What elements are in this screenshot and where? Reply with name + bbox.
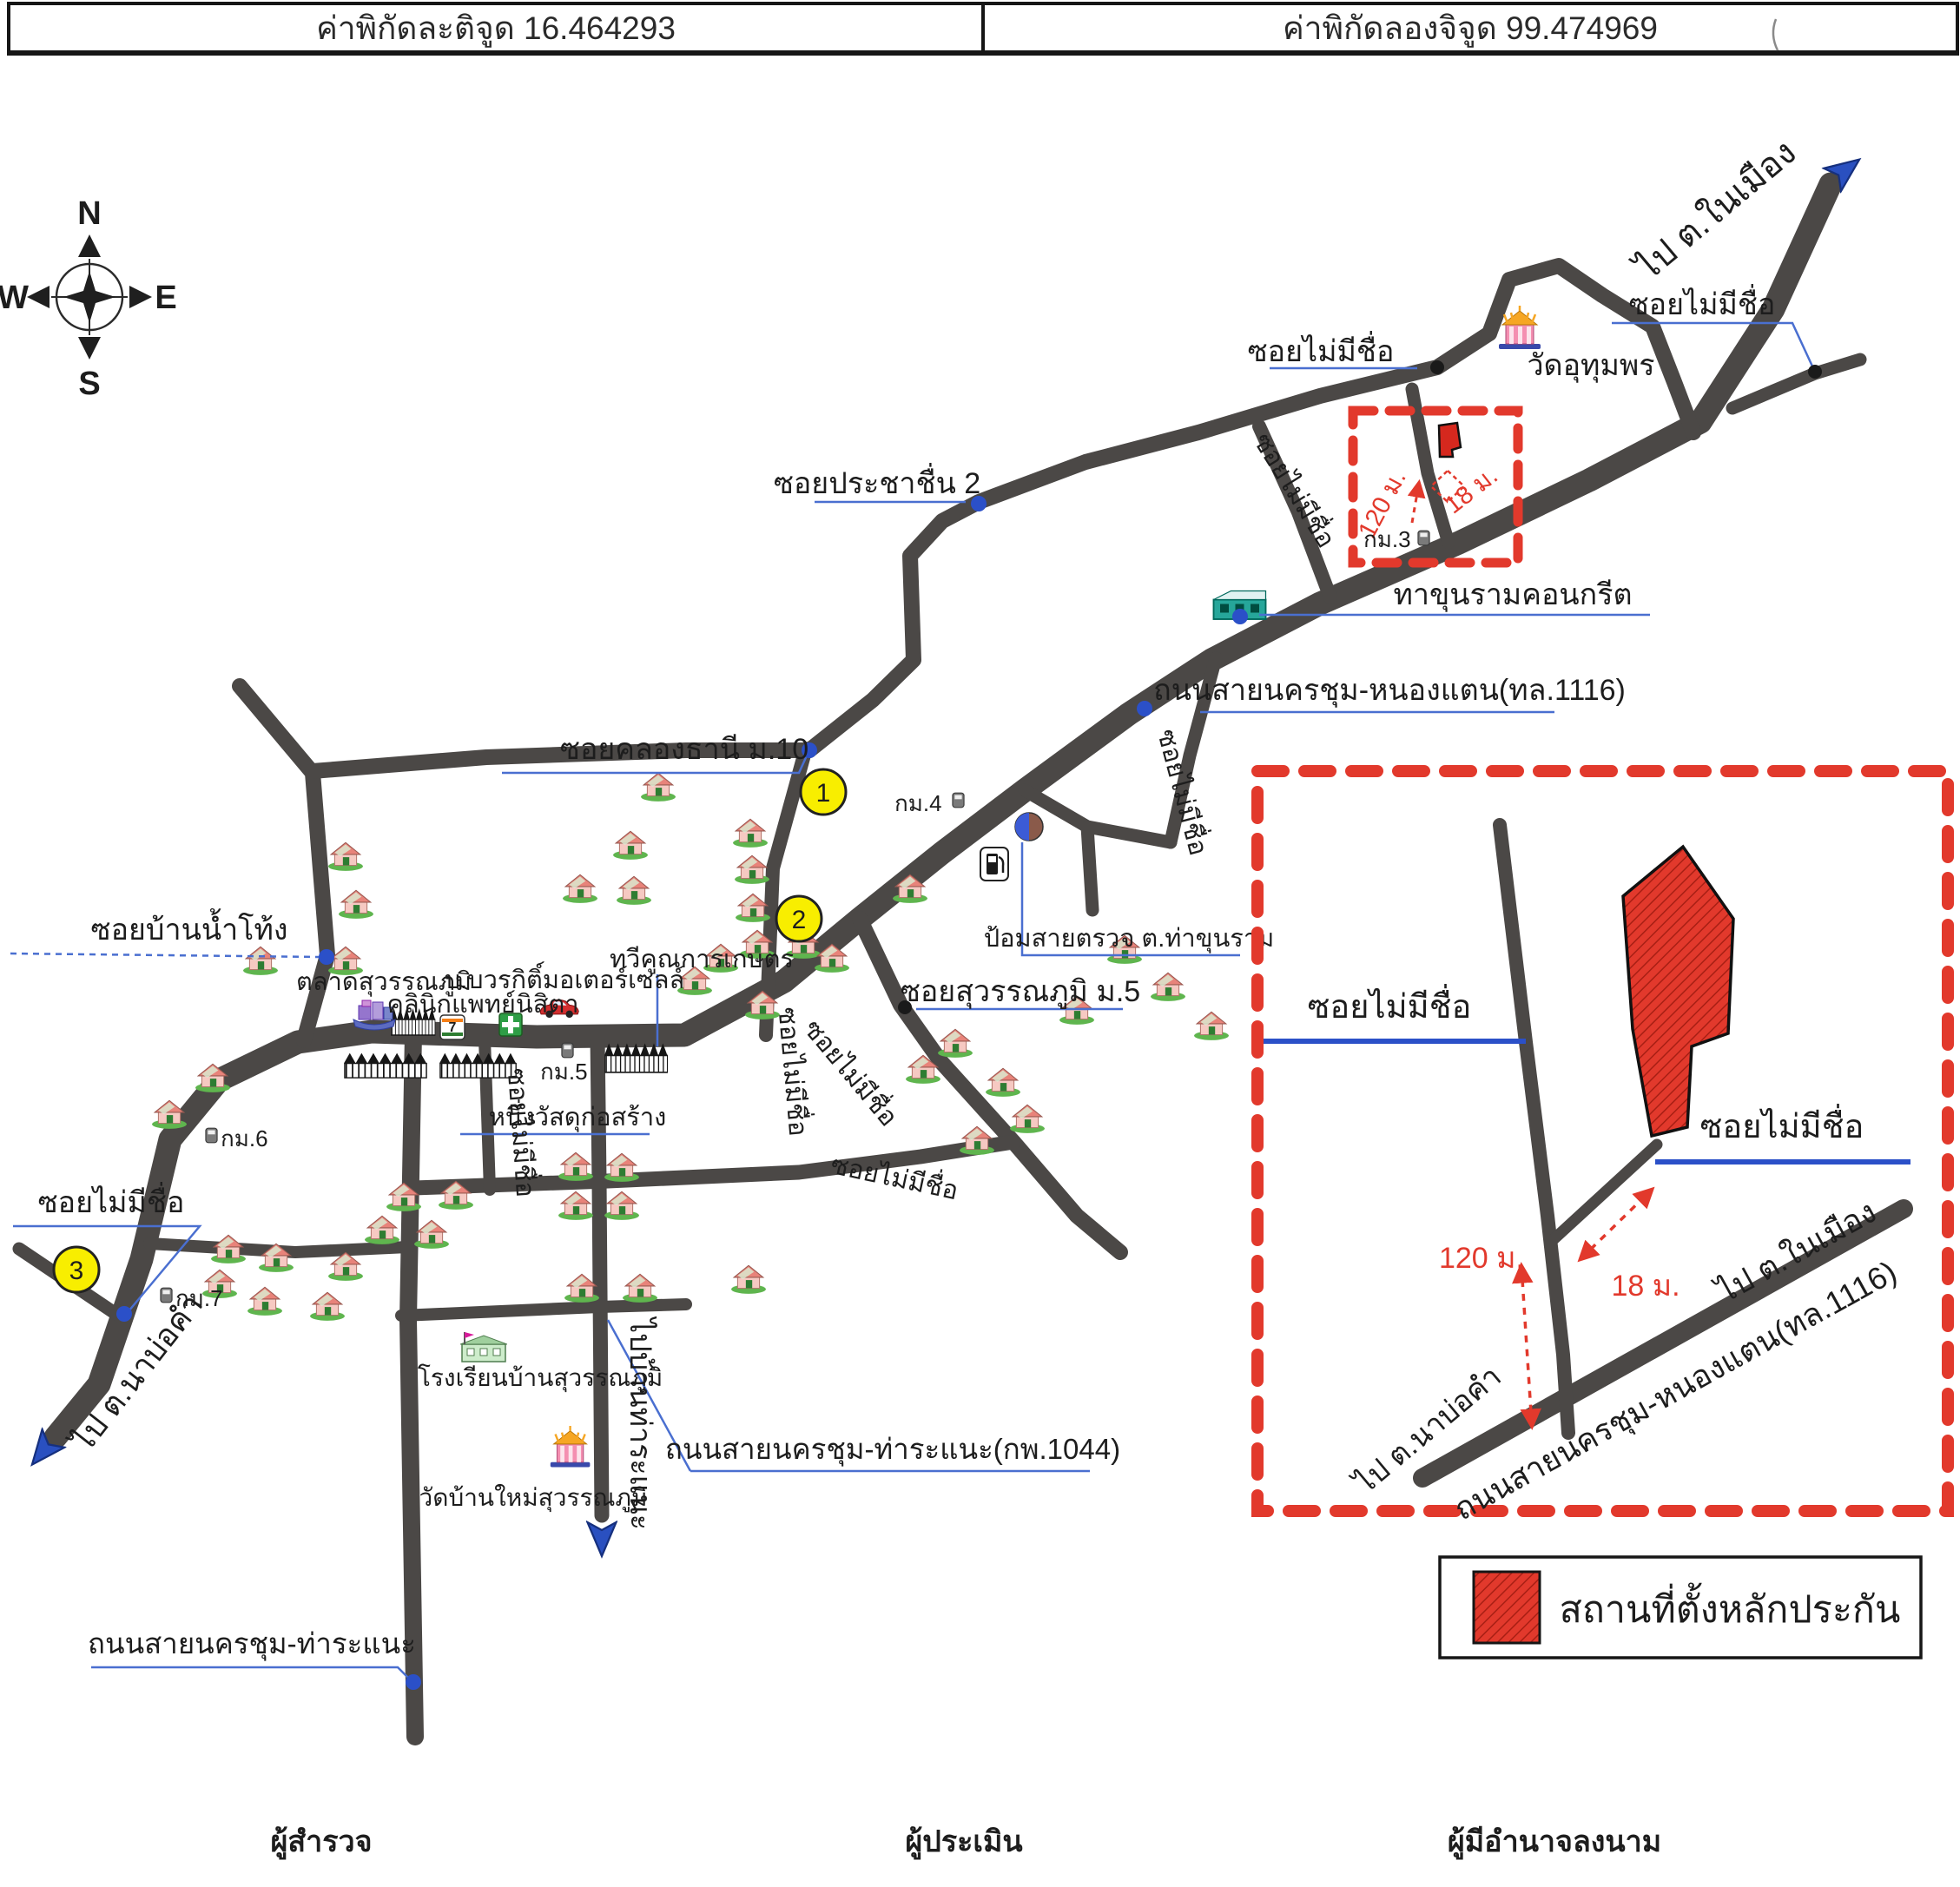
compass-east-label: E xyxy=(155,280,176,316)
collateral-inset: ซอยไม่มีชื่อ ซอยไม่มีชื่อ 120 ม. 18 ม. ไ… xyxy=(1257,771,1948,1528)
road-1044-label: ถนนสายนครชุม-ท่าระแนะ(กพ.1044) xyxy=(665,1433,1120,1467)
house-icon xyxy=(1010,1105,1045,1133)
legend-collateral-swatch xyxy=(1474,1572,1540,1643)
road-tha-ranae-label: ถนนสายนครชุม-ท่าระแนะ xyxy=(88,1627,416,1661)
inset-18m-label: 18 ม. xyxy=(1611,1270,1680,1303)
house-icon xyxy=(613,831,648,860)
wat-ban-mai-label: วัดบ้านใหม่สุวรรณภูมิ xyxy=(419,1483,648,1513)
road-suwannaphum-diagonal xyxy=(860,919,1120,1252)
thawikhun-kaset-label: ทวีคูณการเกษตร xyxy=(610,946,794,974)
house-icon xyxy=(339,890,373,919)
house-icon xyxy=(604,1153,639,1182)
soi-noname-topright-label: ซอยไม่มีชื่อ xyxy=(1629,284,1776,321)
compass-north-label: N xyxy=(77,195,101,232)
house-icon xyxy=(617,876,651,905)
inset-120m-label: 120 ม. xyxy=(1439,1242,1524,1275)
survey-map-page: ค่าพิกัดละติจูด 16.464293 ค่าพิกัดลองจิจ… xyxy=(0,0,1960,1887)
km6-milestone-icon xyxy=(206,1128,217,1143)
km6-label: กม.6 xyxy=(221,1125,268,1151)
to-nai-mueang-label: ไป ต.ในเมือง xyxy=(1627,132,1804,289)
house-icon xyxy=(558,1152,593,1181)
police-box-icon xyxy=(1015,813,1043,841)
house-icon xyxy=(328,842,363,871)
distance-18m-small-label: 18 ม. xyxy=(1440,462,1503,520)
house-icon xyxy=(641,773,676,802)
compass-rose: N S E W xyxy=(0,195,177,402)
house-icon xyxy=(604,1191,639,1220)
house-icon xyxy=(1151,973,1185,1001)
house-icon xyxy=(310,1292,345,1321)
house-icon xyxy=(731,1265,766,1294)
collateral-parcel-polygon xyxy=(1623,847,1733,1136)
inset-120m-arrow xyxy=(1521,1266,1532,1426)
road-police-south-branch xyxy=(1087,827,1092,910)
surveyor-label: ผู้สำรวจ xyxy=(270,1825,372,1860)
km3-label: กม.3 xyxy=(1363,526,1411,552)
house-icon xyxy=(623,1274,657,1303)
tha-khun-ram-concrete-label: ทาขุนรามคอนกรีต xyxy=(1393,578,1632,612)
soi-khlong-thani-label: ซอยคลองธานี ม.10 xyxy=(560,733,808,766)
inset-soi-right-label: ซอยไม่มีชื่อ xyxy=(1700,1104,1864,1145)
marker-2-label: 2 xyxy=(792,906,807,934)
marker-3-label: 3 xyxy=(69,1257,84,1285)
road-police-loop xyxy=(1025,790,1171,842)
house-icon xyxy=(938,1029,973,1058)
collateral-building-small xyxy=(1439,423,1461,457)
legend-collateral-label: สถานที่ตั้งหลักประกัน xyxy=(1560,1582,1901,1631)
compass-south-label: S xyxy=(78,366,100,402)
km5-milestone-icon xyxy=(562,1043,573,1058)
wat-ban-mai-temple-icon xyxy=(551,1426,591,1468)
km5-label: กม.5 xyxy=(540,1059,588,1085)
km4-label: กม.4 xyxy=(894,790,942,816)
gas-pump-icon xyxy=(980,848,1008,881)
road-school-horizontal xyxy=(401,1304,686,1316)
house-icon xyxy=(1194,1012,1229,1040)
soi-prachachuen-2-label: ซอยประชาชื่น 2 xyxy=(774,463,980,500)
house-icon xyxy=(243,947,278,975)
map-canvas: 7 xyxy=(0,0,1960,1887)
house-icon xyxy=(328,1252,363,1281)
compass-west-label: W xyxy=(0,280,29,316)
inset-road-vertical-soi xyxy=(1500,825,1568,1433)
house-icon xyxy=(563,874,597,903)
soi-noname-top-label: ซอยไม่มีชื่อ xyxy=(1248,331,1395,368)
house-icon xyxy=(558,1191,593,1220)
house-icon xyxy=(735,855,769,884)
appraiser-label: ผู้ประเมิน xyxy=(905,1825,1022,1860)
km4-milestone-icon xyxy=(953,793,964,808)
to-na-bo-kham-label: ไป ต.นาบ่อคำ xyxy=(63,1287,209,1460)
pen-mark xyxy=(1773,19,1778,50)
house-icon xyxy=(365,1216,399,1244)
school-icon xyxy=(460,1332,507,1362)
police-box-label: ป้อมสายตรวจ ต.ท่าขุนราม xyxy=(984,925,1275,953)
house-icon xyxy=(247,1287,282,1316)
to-ban-tha-ranae-label: ไปบ้านท่าระแนะ xyxy=(624,1316,657,1530)
road-soi-right-stub xyxy=(1732,360,1860,408)
seven-eleven-icon xyxy=(440,1015,465,1039)
inset-road-branch-soi xyxy=(1551,1145,1657,1242)
inset-soi-left-label: ซอยไม่มีชื่อ xyxy=(1308,984,1472,1026)
house-icon xyxy=(986,1068,1020,1097)
legend-box: สถานที่ตั้งหลักประกัน xyxy=(1440,1557,1921,1658)
compass-star-icon xyxy=(63,271,115,323)
arrow-to-tha-ranae-icon xyxy=(588,1522,617,1556)
house-icon xyxy=(414,1220,449,1249)
soi-ban-nam-thong-label: ซอยบ้านน้ำโท้ง xyxy=(91,908,288,947)
wat-uthumphon-label: วัดอุทุมพร xyxy=(1527,349,1654,383)
roads-layer xyxy=(19,184,1860,1737)
house-icon xyxy=(733,819,768,848)
soi-suwannaphum-label: ซอยสุวรรณภูมิ ม.5 xyxy=(901,975,1140,1009)
clinic-nisita-label: คลินิกแพทย์นิสิตา xyxy=(386,990,578,1019)
soi-noname-rotated-label: ซอยไม่มีชื่อ xyxy=(798,1012,907,1132)
authorized-signatory-label: ผู้มีอำนาจลงนาม xyxy=(1448,1825,1661,1860)
km3-milestone-icon xyxy=(1418,531,1429,545)
marker-1-label: 1 xyxy=(816,779,831,808)
soi-noname-bottomleft-label: ซอยไม่มีชื่อ xyxy=(38,1182,185,1219)
road-1116-label: ถนนสายนครชุม-หนองแตน(ทล.1116) xyxy=(1153,674,1626,708)
signature-row: ผู้สำรวจ ผู้ประเมิน ผู้มีอำนาจลงนาม xyxy=(270,1825,1661,1860)
soi-noname-rotated-label: ซอยไม่มีชื่อ xyxy=(1248,426,1344,552)
